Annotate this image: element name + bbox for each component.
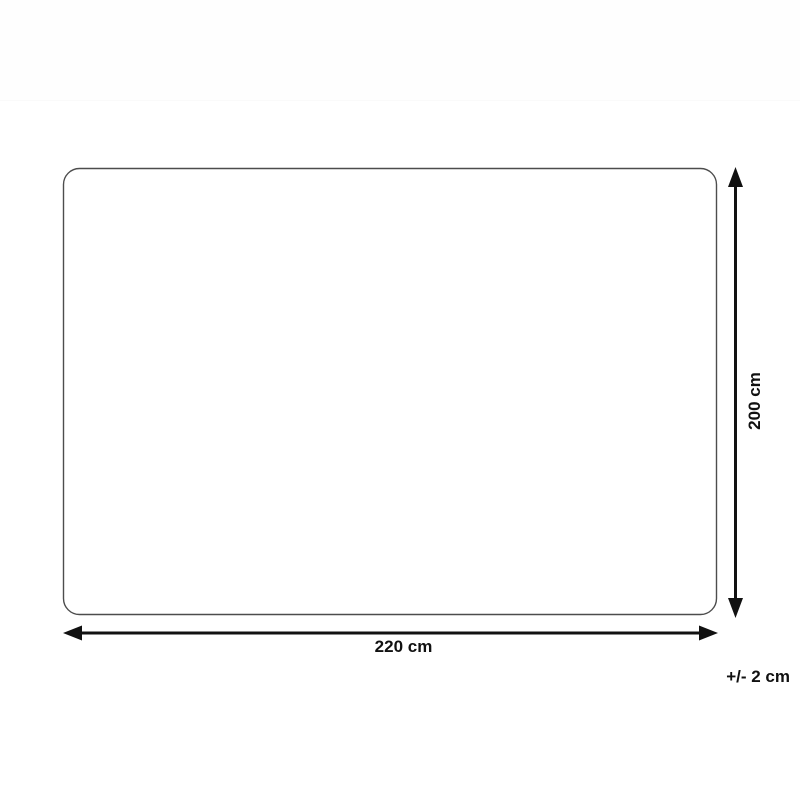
height-dimension-label: 200 cm <box>745 372 765 430</box>
height-dimension-arrow <box>728 167 743 618</box>
product-dimension-diagram: 220 cm 200 cm +/- 2 cm <box>0 0 800 800</box>
product-outline <box>64 169 717 615</box>
width-dimension-label: 220 cm <box>76 637 731 657</box>
dimension-drawing <box>0 0 800 800</box>
tolerance-label: +/- 2 cm <box>726 667 790 687</box>
height-arrowhead-top-icon <box>728 167 743 187</box>
height-arrowhead-bottom-icon <box>728 598 743 618</box>
